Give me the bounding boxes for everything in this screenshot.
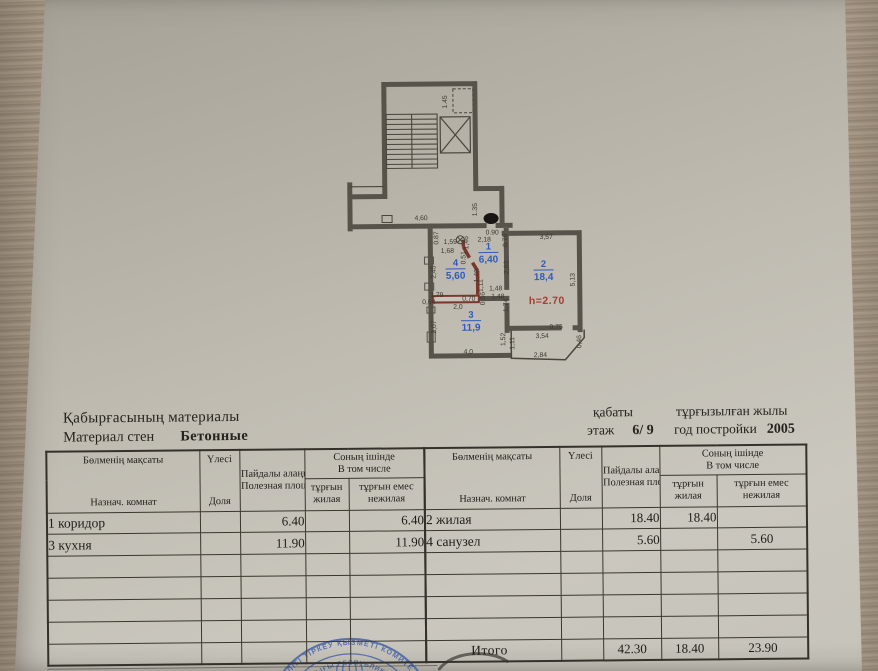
dimension-label: 1,48 (491, 293, 505, 300)
table-cell (660, 550, 717, 572)
svg-text:3: 3 (468, 310, 473, 321)
col-useful-area: Пайдалы алаңыПолезная площадь (239, 449, 305, 511)
table-cell (602, 573, 660, 595)
partition-door-wall (433, 296, 479, 303)
dimension-label: 2,63 (503, 260, 510, 274)
table-cell: 23.90 (718, 637, 808, 660)
col-living: тұрғынжилая (305, 478, 349, 510)
table-cell (305, 510, 349, 532)
table-cell: 11.90 (349, 531, 425, 554)
entrance-door-marker (484, 213, 499, 224)
table-cell (603, 616, 661, 638)
wall-material-line-ru: Материал стенБетонные (63, 428, 248, 447)
floor-value: 6/ 9 (632, 423, 654, 438)
table-cell (241, 620, 306, 643)
col-including: Соның ішіндеВ том числе (659, 444, 806, 474)
walls (349, 83, 581, 357)
table-cell (201, 642, 241, 664)
dimension-label: 3,07 (431, 320, 438, 334)
dimension-label: 2,0 (453, 304, 463, 311)
svg-text:6,40: 6,40 (479, 254, 499, 265)
radiator-symbols (424, 257, 435, 342)
table-row (48, 640, 426, 666)
dimension-label: 0.87 (433, 231, 440, 245)
floor-label-kk: қабаты (593, 404, 633, 420)
table-cell (48, 621, 201, 644)
areas-table-right: Бөлменің мақсатыНазнач. комнат ҮлесіДоля… (423, 443, 809, 663)
table-cell: 3 кухня (47, 533, 200, 556)
table-cell (349, 553, 425, 576)
col-share: ҮлесіДоля (559, 446, 602, 507)
dimension-label: 0,75 (549, 324, 563, 331)
dimension-label: 0.79 (502, 233, 509, 247)
room-label: 45,60 (445, 258, 465, 282)
table-cell (48, 599, 201, 622)
table-cell: 2 жилая (425, 508, 560, 531)
table-row: Итого42.3018.4023.90 (426, 637, 808, 663)
svg-text:5,60: 5,60 (446, 271, 466, 282)
floor-line-ru: этаж6/ 9 (587, 422, 654, 440)
table-cell (350, 640, 426, 663)
table-cell (560, 529, 602, 551)
table-cell (426, 595, 561, 618)
stairs (349, 114, 438, 187)
table-cell (717, 505, 807, 528)
dimension-label: 1,11 (509, 337, 516, 350)
table-cell (201, 598, 241, 620)
table-cell (426, 617, 561, 640)
table-cell (661, 616, 718, 638)
svg-text:11,9: 11,9 (462, 323, 481, 334)
dimension-label: 1,11 (478, 279, 485, 292)
dimension-label: 3,57 (540, 234, 554, 241)
dimension-label: 1,46 (463, 236, 470, 250)
table-cell (717, 571, 807, 594)
dimension-label: 4,0 (464, 349, 474, 356)
table-cell: 18.40 (602, 507, 660, 529)
dimension-label: 0,70 (462, 296, 476, 303)
table-cell (560, 573, 602, 595)
table-cell (350, 619, 426, 642)
table-cell (200, 555, 240, 577)
table-cell: 6.40 (240, 510, 305, 533)
year-built-line-ru: год постройки2005 (674, 421, 795, 439)
table-cell (561, 617, 603, 639)
table-cell (306, 619, 350, 641)
document-content: 16,40218,4311,945,60 1.454,601.350.902,1… (0, 0, 878, 671)
table-cell (305, 554, 349, 576)
table-cell (660, 572, 717, 594)
col-living: тұрғынжилая (660, 474, 717, 507)
room-label: 311,9 (461, 310, 481, 334)
wall-material-label-kk: Қабырғасының материалы (63, 409, 240, 428)
col-room-purpose: Бөлменің мақсатыНазнач. комнат (424, 447, 560, 509)
table-cell: 5.60 (717, 527, 807, 550)
col-useful-area: Пайдалы алаңыПолезная площадь (601, 446, 660, 508)
floor-label-ru: этаж (587, 422, 614, 437)
loggia (511, 330, 584, 361)
table-cell (48, 577, 201, 600)
dimension-label: 1,74 (503, 298, 510, 312)
table-cell (306, 641, 350, 663)
table-cell (661, 594, 718, 616)
dimension-label: 5,13 (570, 273, 577, 287)
table-cell (201, 620, 241, 642)
table-cell: 1 коридор (47, 511, 200, 534)
table-cell: 42.30 (603, 638, 661, 660)
dimension-label: 3,54 (536, 333, 550, 340)
wall-material-label-ru: Материал стен (63, 429, 154, 446)
col-nonliving: тұрғын емеснежилая (717, 473, 807, 506)
table-cell: Итого (426, 639, 561, 662)
table-cell (305, 532, 349, 554)
elevator-shaft (440, 117, 470, 153)
svg-text:2: 2 (541, 259, 546, 270)
dimension-label: 1,79 (430, 292, 444, 299)
wall-material-value: Бетонные (180, 428, 248, 445)
dimension-label: 2,84 (534, 352, 548, 359)
svg-text:18,4: 18,4 (534, 272, 554, 283)
col-including: Соның ішіндеВ том числе (304, 448, 424, 478)
dimension-label: 1,49 (474, 269, 481, 283)
svg-text:1: 1 (486, 241, 492, 252)
table-cell (660, 528, 717, 550)
table-cell (200, 533, 240, 555)
table-cell (200, 511, 240, 533)
dimension-label: 1,68 (441, 248, 455, 255)
col-nonliving: тұрғын емеснежилая (349, 477, 425, 510)
dimension-labels: 1.454,601.350.902,180.791,461,590.871,68… (413, 94, 583, 360)
dimension-label: 1.35 (472, 203, 479, 217)
table-cell (200, 577, 240, 599)
table-cell (718, 615, 808, 638)
svg-text:4: 4 (453, 258, 459, 269)
dimension-label: 2,45 (431, 265, 438, 279)
table-cell (349, 575, 425, 598)
table-cell (241, 598, 306, 621)
table-cell: 11.90 (240, 532, 305, 555)
table-cell (603, 594, 661, 616)
areas-table-left: Бөлменің мақсатыНазнач. комнат ҮлесіДоля… (45, 447, 427, 667)
dimension-label: 0,64 (422, 299, 436, 306)
table-cell (47, 555, 200, 578)
wall-niche (382, 215, 392, 222)
dimension-label: 0,56 (480, 292, 487, 306)
table-cell (560, 551, 602, 573)
col-room-purpose: Бөлменің мақсатыНазнач. комнат (46, 450, 200, 512)
dimension-label: 1,48 (489, 285, 503, 292)
table-cell (717, 549, 807, 572)
table-cell (305, 576, 349, 598)
table-cell (306, 597, 350, 619)
table-cell: 18.40 (660, 506, 717, 528)
document-paper: 16,40218,4311,945,60 1.454,601.350.902,1… (0, 0, 878, 671)
room-labels: 16,40218,4311,945,60 (445, 241, 554, 334)
table-cell (240, 554, 305, 577)
table-cell (241, 642, 306, 665)
ceiling-height-note: h=2.70 (529, 295, 565, 307)
table-cell: 6.40 (349, 509, 425, 532)
dimension-label: 1,59 (444, 239, 458, 246)
dimension-label: 1.45 (442, 95, 449, 109)
table-cell (48, 643, 201, 666)
partition-walls (463, 240, 478, 295)
dimension-label: 0.90 (486, 229, 500, 236)
duct-dashed-outline (453, 89, 473, 113)
table-cell (350, 597, 426, 620)
room-label: 16,40 (478, 241, 498, 265)
dimension-label: 4,60 (414, 215, 428, 222)
room-label: 218,4 (533, 259, 553, 283)
table-cell: 4 санузел (425, 530, 560, 553)
table-cell: 18.40 (661, 638, 718, 660)
year-built-label-ru: год постройки (674, 421, 757, 437)
year-built-value: 2005 (767, 422, 795, 437)
col-share: ҮлесіДоля (199, 450, 240, 511)
table-cell: 5.60 (602, 529, 660, 551)
year-built-label-kk: тұрғызылған жылы (676, 403, 788, 420)
table-cell (561, 639, 603, 661)
table-cell (425, 574, 560, 597)
table-cell (240, 576, 305, 599)
table-cell (602, 551, 660, 573)
table-cell (718, 593, 808, 616)
dimension-label: 0.51 (460, 251, 467, 265)
vent-symbol (456, 236, 464, 244)
table-cell (425, 552, 560, 575)
table-cell (560, 507, 602, 529)
photo-of-document: 16,40218,4311,945,60 1.454,601.350.902,1… (0, 0, 878, 671)
dimension-label: 0,46 (576, 335, 583, 349)
dimension-label: 1,52 (500, 333, 507, 347)
table-cell (561, 595, 603, 617)
dimension-label: 2,18 (478, 237, 492, 244)
